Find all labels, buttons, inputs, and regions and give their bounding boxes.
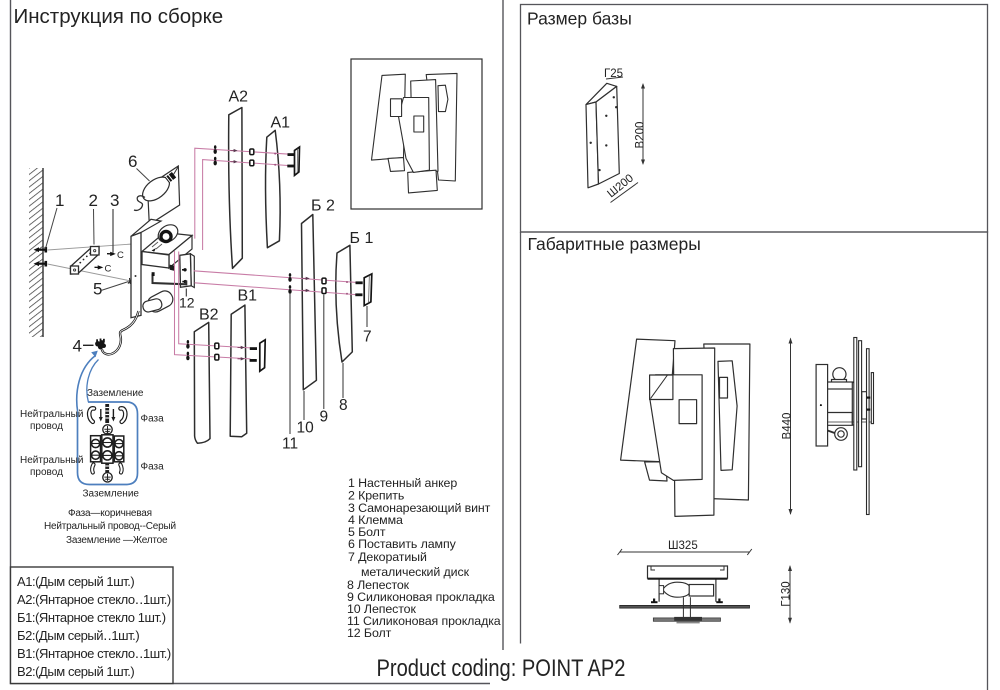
svg-text:1: 1 xyxy=(55,191,64,210)
svg-text:A2: A2 xyxy=(229,89,249,106)
svg-text:4: 4 xyxy=(73,337,82,356)
svg-text:В1:(Янтарное стекло‥1шт.): В1:(Янтарное стекло‥1шт.) xyxy=(17,646,171,661)
svg-text:Б 1: Б 1 xyxy=(350,230,374,247)
svg-text:7 Декоратиый: 7 Декоратиый xyxy=(348,550,427,564)
svg-text:Заземление: Заземление xyxy=(83,489,140,500)
svg-text:B1: B1 xyxy=(238,288,258,305)
svg-text:Фаза: Фаза xyxy=(141,414,165,425)
svg-text:Инструкция по сборке: Инструкция по сборке xyxy=(14,5,224,28)
svg-text:провод: провод xyxy=(30,421,63,432)
svg-text:7: 7 xyxy=(363,329,372,346)
svg-text:C: C xyxy=(105,264,112,275)
svg-text:Заземление —Желтое: Заземление —Желтое xyxy=(66,535,168,546)
svg-text:6: 6 xyxy=(128,152,137,171)
svg-text:Г130: Г130 xyxy=(781,581,793,606)
svg-text:Б1:(Янтарное стекло 1шт.): Б1:(Янтарное стекло 1шт.) xyxy=(17,610,166,625)
svg-text:Нейтральный провод--Серый: Нейтральный провод--Серый xyxy=(44,521,176,532)
svg-text:Нейтральный: Нейтральный xyxy=(20,409,83,420)
svg-text:3: 3 xyxy=(110,191,119,210)
svg-text:6 Поставить лампу: 6 Поставить лампу xyxy=(348,537,457,551)
svg-text:В440: В440 xyxy=(782,413,794,440)
svg-text:12 Болт: 12 Болт xyxy=(347,626,392,640)
svg-text:Размер базы: Размер базы xyxy=(527,9,632,29)
svg-text:C: C xyxy=(117,250,124,261)
svg-text:8: 8 xyxy=(339,397,348,414)
svg-text:12: 12 xyxy=(179,295,195,311)
svg-text:10: 10 xyxy=(297,420,315,437)
svg-text:A1: A1 xyxy=(271,115,291,132)
svg-text:металический диск: металический диск xyxy=(361,565,470,579)
svg-text:5: 5 xyxy=(93,280,102,299)
svg-text:Заземление: Заземление xyxy=(87,388,144,399)
svg-text:Габаритные размеры: Габаритные размеры xyxy=(528,234,701,254)
svg-text:Фаза—коричневая: Фаза—коричневая xyxy=(68,508,152,519)
svg-text:2: 2 xyxy=(89,191,98,210)
svg-text:В200: В200 xyxy=(635,122,647,149)
svg-text:Фаза: Фаза xyxy=(141,462,165,473)
svg-text:A2:(Янтарное стекло‥1шт.): A2:(Янтарное стекло‥1шт.) xyxy=(17,592,171,607)
svg-text:Б 2: Б 2 xyxy=(311,198,335,215)
svg-text:Ш325: Ш325 xyxy=(668,540,698,552)
svg-text:В2:(Дым серый 1шт.): В2:(Дым серый 1шт.) xyxy=(17,664,134,679)
svg-text:Б2:(Дым серый‥1шт.): Б2:(Дым серый‥1шт.) xyxy=(17,628,139,643)
svg-text:B2: B2 xyxy=(199,307,219,324)
svg-text:11: 11 xyxy=(282,436,298,453)
svg-text:провод: провод xyxy=(30,467,63,478)
svg-text:9: 9 xyxy=(320,409,329,426)
svg-text:Нейтральный: Нейтральный xyxy=(20,455,83,466)
svg-text:Product coding: POINT AP2: Product coding: POINT AP2 xyxy=(377,655,626,682)
svg-text:A1:(Дым серый 1шт.): A1:(Дым серый 1шт.) xyxy=(17,574,134,589)
